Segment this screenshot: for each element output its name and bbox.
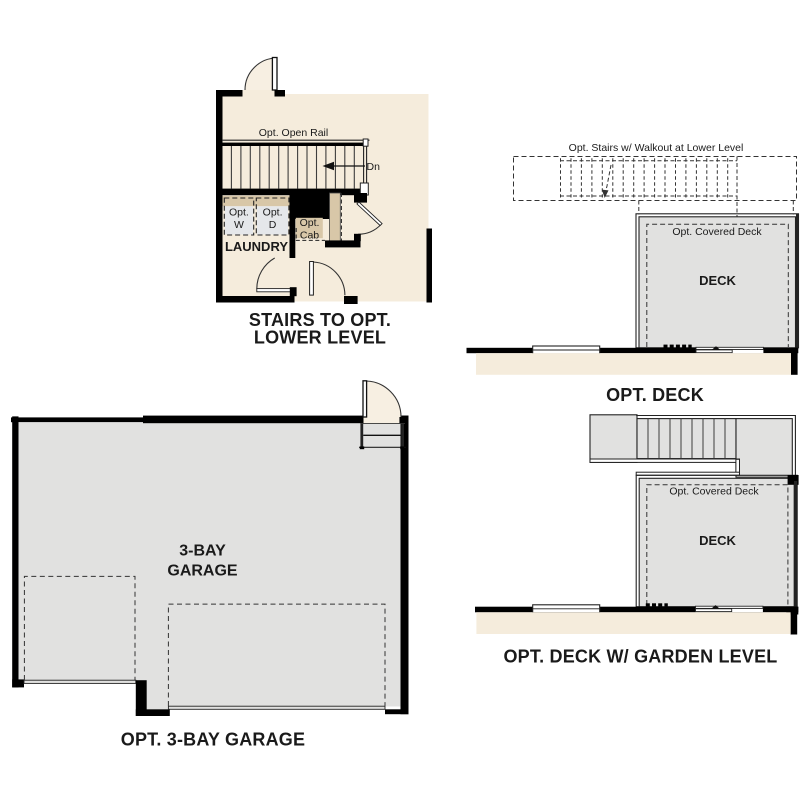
- svg-text:DECK: DECK: [699, 273, 736, 288]
- svg-text:D: D: [269, 219, 277, 231]
- svg-text:Opt. Covered Deck: Opt. Covered Deck: [672, 226, 762, 238]
- svg-text:Dn: Dn: [367, 161, 381, 173]
- svg-text:GARAGE: GARAGE: [167, 563, 238, 580]
- svg-text:Cab: Cab: [300, 230, 319, 242]
- svg-text:W: W: [234, 219, 244, 231]
- svg-text:DECK: DECK: [699, 533, 736, 548]
- svg-text:OPT. DECK: OPT. DECK: [606, 385, 704, 405]
- svg-text:Opt. Covered Deck: Opt. Covered Deck: [669, 486, 759, 498]
- svg-text:3-BAY: 3-BAY: [179, 543, 226, 560]
- svg-text:Opt.: Opt.: [229, 207, 249, 219]
- svg-text:LOWER LEVEL: LOWER LEVEL: [254, 328, 386, 348]
- svg-text:Opt. Open Rail: Opt. Open Rail: [259, 127, 328, 139]
- svg-text:OPT. DECK W/ GARDEN LEVEL: OPT. DECK W/ GARDEN LEVEL: [503, 647, 777, 667]
- svg-text:LAUNDRY: LAUNDRY: [225, 239, 288, 254]
- svg-text:Opt. Stairs w/ Walkout at Lowe: Opt. Stairs w/ Walkout at Lower Level: [569, 142, 744, 154]
- svg-text:Opt.: Opt.: [300, 217, 320, 229]
- svg-text:Opt.: Opt.: [263, 207, 283, 219]
- svg-text:OPT. 3-BAY GARAGE: OPT. 3-BAY GARAGE: [121, 730, 305, 750]
